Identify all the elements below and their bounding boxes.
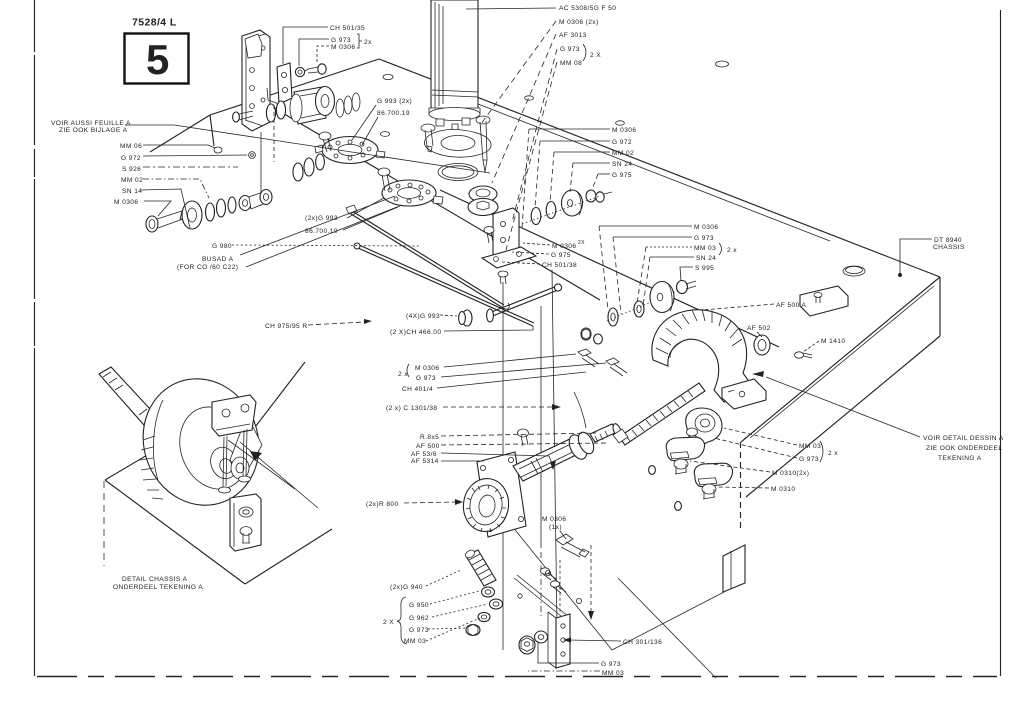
- svg-text:7528/4 L: 7528/4 L: [132, 17, 177, 29]
- svg-text:MM 02: MM 02: [121, 177, 143, 184]
- svg-text:TEKENING A: TEKENING A: [938, 455, 982, 462]
- svg-text:2 X: 2 X: [383, 619, 394, 626]
- svg-text:G 950: G 950: [409, 602, 429, 609]
- svg-text:AF 3013: AF 3013: [559, 32, 587, 39]
- svg-text:M 0306: M 0306: [114, 199, 138, 206]
- svg-text:MM 03: MM 03: [404, 638, 426, 645]
- svg-text:SN 24: SN 24: [612, 161, 632, 168]
- svg-text:(2 x) C 1301/38: (2 x) C 1301/38: [386, 405, 437, 412]
- svg-text:G 962: G 962: [409, 615, 429, 622]
- svg-text:MM 03: MM 03: [602, 670, 624, 677]
- svg-text:(2 X)CH 466.00: (2 X)CH 466.00: [390, 329, 441, 336]
- svg-text:M 0306: M 0306: [331, 44, 355, 51]
- svg-text:ZIE OOK BIJLAGE A: ZIE OOK BIJLAGE A: [59, 127, 128, 134]
- svg-text:M 0306: M 0306: [415, 365, 439, 372]
- svg-text:(FOR CO /60 C22): (FOR CO /60 C22): [177, 264, 238, 271]
- svg-text:CH 301/136: CH 301/136: [623, 639, 662, 646]
- svg-text:AF 500: AF 500: [416, 443, 440, 450]
- svg-text:R.8x5: R.8x5: [420, 434, 439, 441]
- svg-text:G 980: G 980: [212, 243, 232, 250]
- svg-text:MM 06: MM 06: [120, 143, 142, 150]
- svg-text:M 0306: M 0306: [694, 224, 718, 231]
- svg-text:(2x)G 993: (2x)G 993: [305, 215, 338, 222]
- svg-text:S 926: S 926: [122, 166, 141, 173]
- svg-text:(4X)G 993: (4X)G 993: [406, 313, 440, 320]
- svg-text:MM 03: MM 03: [799, 443, 821, 450]
- svg-text:M 0306: M 0306: [552, 243, 576, 250]
- svg-text:CH 501/38: CH 501/38: [542, 262, 577, 269]
- svg-text:G 975: G 975: [551, 252, 571, 259]
- svg-text:(2x)R 800: (2x)R 800: [366, 501, 399, 508]
- svg-text:(2x)G 940: (2x)G 940: [390, 584, 423, 591]
- svg-text:2 x: 2 x: [727, 247, 737, 254]
- svg-text:2 X: 2 X: [590, 52, 601, 59]
- svg-text:SN 14: SN 14: [122, 188, 142, 195]
- svg-text:M 0310: M 0310: [771, 486, 795, 493]
- svg-text:MM 08: MM 08: [560, 60, 582, 67]
- svg-text:CHASSIS: CHASSIS: [933, 244, 965, 251]
- svg-text:G 973: G 973: [331, 37, 351, 44]
- svg-text:86.700.19: 86.700.19: [377, 110, 410, 117]
- svg-text:AC 5308/5G F 50: AC 5308/5G F 50: [559, 5, 616, 12]
- svg-text:G 973: G 973: [799, 456, 819, 463]
- svg-text:G 975: G 975: [612, 172, 632, 179]
- svg-text:M 0310(2x): M 0310(2x): [772, 470, 809, 477]
- svg-text:DT 8940: DT 8940: [934, 237, 962, 244]
- svg-text:SN 24: SN 24: [696, 255, 716, 262]
- svg-text:G 972: G 972: [612, 139, 632, 146]
- svg-text:BUSAD A: BUSAD A: [202, 256, 234, 263]
- svg-text:(1x): (1x): [549, 524, 562, 531]
- svg-text:2 x: 2 x: [828, 450, 838, 457]
- svg-text:M 0306: M 0306: [542, 516, 566, 523]
- svg-text:2x: 2x: [364, 39, 372, 46]
- svg-text:MM 02: MM 02: [612, 150, 634, 157]
- svg-text:AF 5314: AF 5314: [411, 458, 439, 465]
- svg-text:AF 500 A: AF 500 A: [776, 302, 807, 309]
- svg-text:AF 53/6: AF 53/6: [411, 451, 437, 458]
- svg-text:G 972: G 972: [121, 155, 141, 162]
- svg-text:CH 975/95 R: CH 975/95 R: [265, 323, 308, 330]
- svg-text:G 973: G 973: [694, 235, 714, 242]
- svg-text:CH 501/35: CH 501/35: [330, 25, 365, 32]
- svg-text:G 973: G 973: [601, 661, 621, 668]
- svg-text:G 973: G 973: [560, 46, 580, 53]
- svg-text:ZIE OOK ONDERDEEL: ZIE OOK ONDERDEEL: [926, 445, 1002, 452]
- svg-text:ONDERDEEL TEKENING A: ONDERDEEL TEKENING A: [113, 584, 203, 591]
- svg-text:2X: 2X: [578, 240, 585, 246]
- svg-text:86.700.19: 86.700.19: [305, 228, 338, 235]
- svg-text:DETAIL CHASSIS A: DETAIL CHASSIS A: [122, 576, 188, 583]
- svg-text:VOIR DETAIL DESSIN A: VOIR DETAIL DESSIN A: [923, 435, 1004, 442]
- svg-text:MM 03: MM 03: [694, 245, 716, 252]
- svg-text:G 973: G 973: [416, 375, 436, 382]
- svg-text:VOIR AUSSI FEUILLE A: VOIR AUSSI FEUILLE A: [51, 120, 131, 127]
- svg-text:S 995: S 995: [695, 265, 714, 272]
- svg-text:5: 5: [146, 36, 170, 83]
- svg-text:M 1410: M 1410: [821, 338, 845, 345]
- svg-text:M 0306: M 0306: [612, 127, 636, 134]
- svg-text:M 0306 (2x): M 0306 (2x): [559, 19, 599, 26]
- svg-text:AF 502: AF 502: [747, 325, 771, 332]
- svg-text:G 973: G 973: [409, 627, 429, 634]
- svg-text:CH 401/4: CH 401/4: [402, 386, 433, 393]
- svg-text:G 993 (2x): G 993 (2x): [377, 98, 412, 105]
